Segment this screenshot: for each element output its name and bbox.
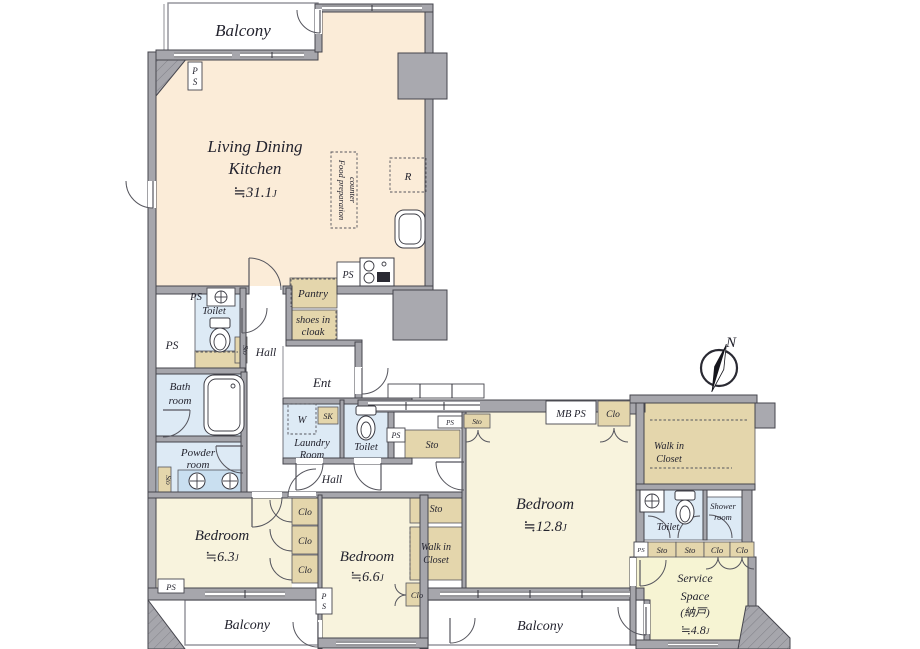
service-label-3: (納戸) [680, 606, 710, 619]
sto-row-2-label: Sto [685, 545, 696, 555]
ps-vert-bottom-p: P [321, 592, 327, 601]
ldk-size: ≒31.1J [233, 185, 277, 201]
ps-top-label: PS [189, 292, 202, 303]
wic-right-label-1: Walk in [654, 441, 684, 452]
room-bedroom-c-floor [322, 495, 420, 638]
ldk-label-1: Living Dining [207, 137, 303, 156]
hall2-label: Hall [321, 474, 342, 486]
food-prep-label-1: Food preparation [337, 159, 347, 220]
clo-top-label: Clo [606, 410, 620, 420]
toilet1-icon [210, 318, 230, 352]
toilet3-label: Toilet [657, 522, 680, 533]
wic-left-label-2: Closet [423, 555, 449, 566]
bedroom-c-size: ≒6.6J [350, 570, 384, 585]
bedroom-main-label: Bedroom [516, 496, 574, 513]
clo-3-label: Clo [298, 566, 312, 576]
sk-label: SK [323, 412, 333, 421]
ps-room-label: PS [165, 340, 179, 352]
ps-row-label: PS [636, 547, 645, 554]
washer-label: W [298, 415, 308, 426]
pantry-label: Pantry [297, 288, 328, 300]
bedroom-b-label: Bedroom [195, 528, 250, 544]
mb-ps-label: MB PS [555, 409, 586, 420]
toilet3-icon [675, 491, 695, 524]
service-label-2: Space [681, 589, 710, 603]
wic-left-box [410, 527, 462, 580]
sto-2-label: Sto [430, 504, 443, 515]
clo-2-label: Clo [298, 537, 312, 547]
sto-tiny-label: Sto [472, 417, 482, 426]
clo-1-label: Clo [298, 508, 312, 518]
bedroom-c-label: Bedroom [340, 549, 395, 565]
balcony-top-label: Balcony [215, 21, 271, 40]
laundry-label-2: Room [299, 450, 325, 461]
service-label-1: Service [677, 571, 713, 585]
sto-left-vert-label: Sto [164, 475, 173, 485]
bedroom-b-size: ≒6.3J [205, 550, 239, 565]
ps-toilet2-label: PS [391, 431, 401, 440]
clo-row-2-label: Clo [736, 545, 748, 555]
balcony-bl-label: Balcony [224, 618, 271, 633]
stove-icon [360, 258, 394, 286]
wic-left-label-1: Walk in [421, 542, 451, 553]
shoes-label-2: cloak [302, 327, 325, 338]
toilet2-label: Toilet [354, 442, 379, 453]
shower-label-2: room [714, 512, 732, 522]
ps-kitchen-label: PS [341, 270, 353, 281]
toilet1-label: Toilet [202, 306, 227, 317]
floor-plan-canvas: N Balcony Living Dining Kitchen ≒31.1J F… [0, 0, 920, 649]
bath-label-1: Bath [170, 381, 191, 393]
toilet2-icon [356, 406, 376, 440]
service-size: ≒4.8J [681, 623, 710, 637]
ps-vert-top-p: P [191, 66, 198, 76]
hall1-label: Hall [255, 347, 276, 359]
powder-label-2: room [187, 459, 210, 471]
compass-north-label: N [725, 335, 737, 351]
toilet1-mat [195, 351, 240, 368]
ps-vert-top-s: S [193, 77, 198, 87]
floor-plan-svg: N Balcony Living Dining Kitchen ≒31.1J F… [0, 0, 920, 649]
bath-label-2: room [169, 395, 192, 407]
ps-bedroom-b-label: PS [165, 582, 176, 592]
shoes-label-1: shoes in [296, 315, 330, 326]
wic-right-label-2: Closet [656, 454, 682, 465]
ps-vert-bottom-s: S [322, 602, 326, 611]
ps-tiny-label: PS [445, 419, 454, 427]
toilet1-sink-icon [215, 291, 227, 303]
bedroom-main-size: ≒12.8J [523, 519, 567, 535]
food-prep-label-2: counter [348, 177, 358, 204]
clo-b66-label: Clo [411, 590, 423, 600]
ent-label: Ent [312, 375, 331, 390]
compass: N [701, 335, 737, 393]
powder-label-1: Powder [180, 447, 216, 459]
shower-label-1: Shower [710, 501, 736, 511]
sto-1-label: Sto [426, 440, 439, 451]
sto-toilet-vert-label: Sto [241, 345, 250, 355]
toilet3-sink-icon [640, 490, 664, 512]
balcony-bc-label: Balcony [517, 619, 564, 634]
ldk-label-2: Kitchen [228, 159, 282, 178]
laundry-label-1: Laundry [293, 438, 330, 449]
clo-row-1-label: Clo [711, 545, 723, 555]
kitchen-sink-icon [395, 210, 425, 248]
sto-row-1-label: Sto [657, 545, 668, 555]
refrigerator-label: R [404, 171, 412, 183]
bathtub-icon [204, 375, 244, 435]
